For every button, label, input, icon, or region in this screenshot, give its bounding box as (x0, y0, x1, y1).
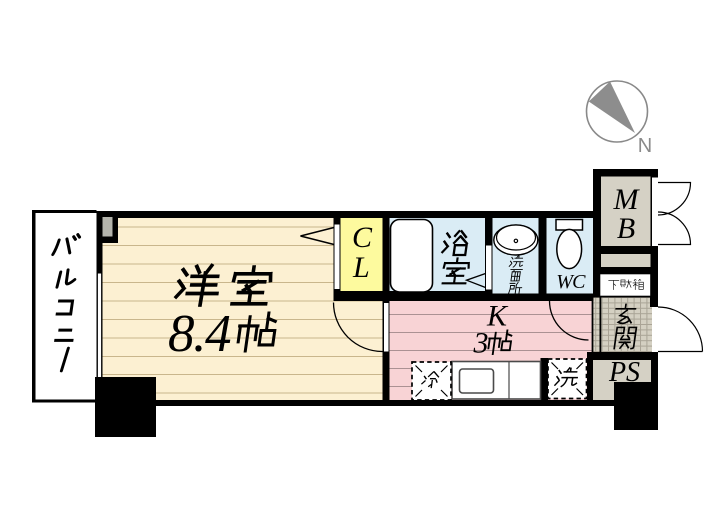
svg-text:B: B (617, 212, 635, 245)
svg-text:8.4: 8.4 (168, 305, 232, 363)
svg-text:L: L (352, 251, 370, 284)
svg-text:C: C (352, 221, 373, 254)
svg-text:K: K (486, 300, 509, 333)
svg-text:N: N (638, 135, 652, 157)
svg-text:PS: PS (608, 357, 640, 388)
svg-text:3: 3 (473, 327, 489, 360)
svg-text:WC: WC (556, 271, 586, 293)
